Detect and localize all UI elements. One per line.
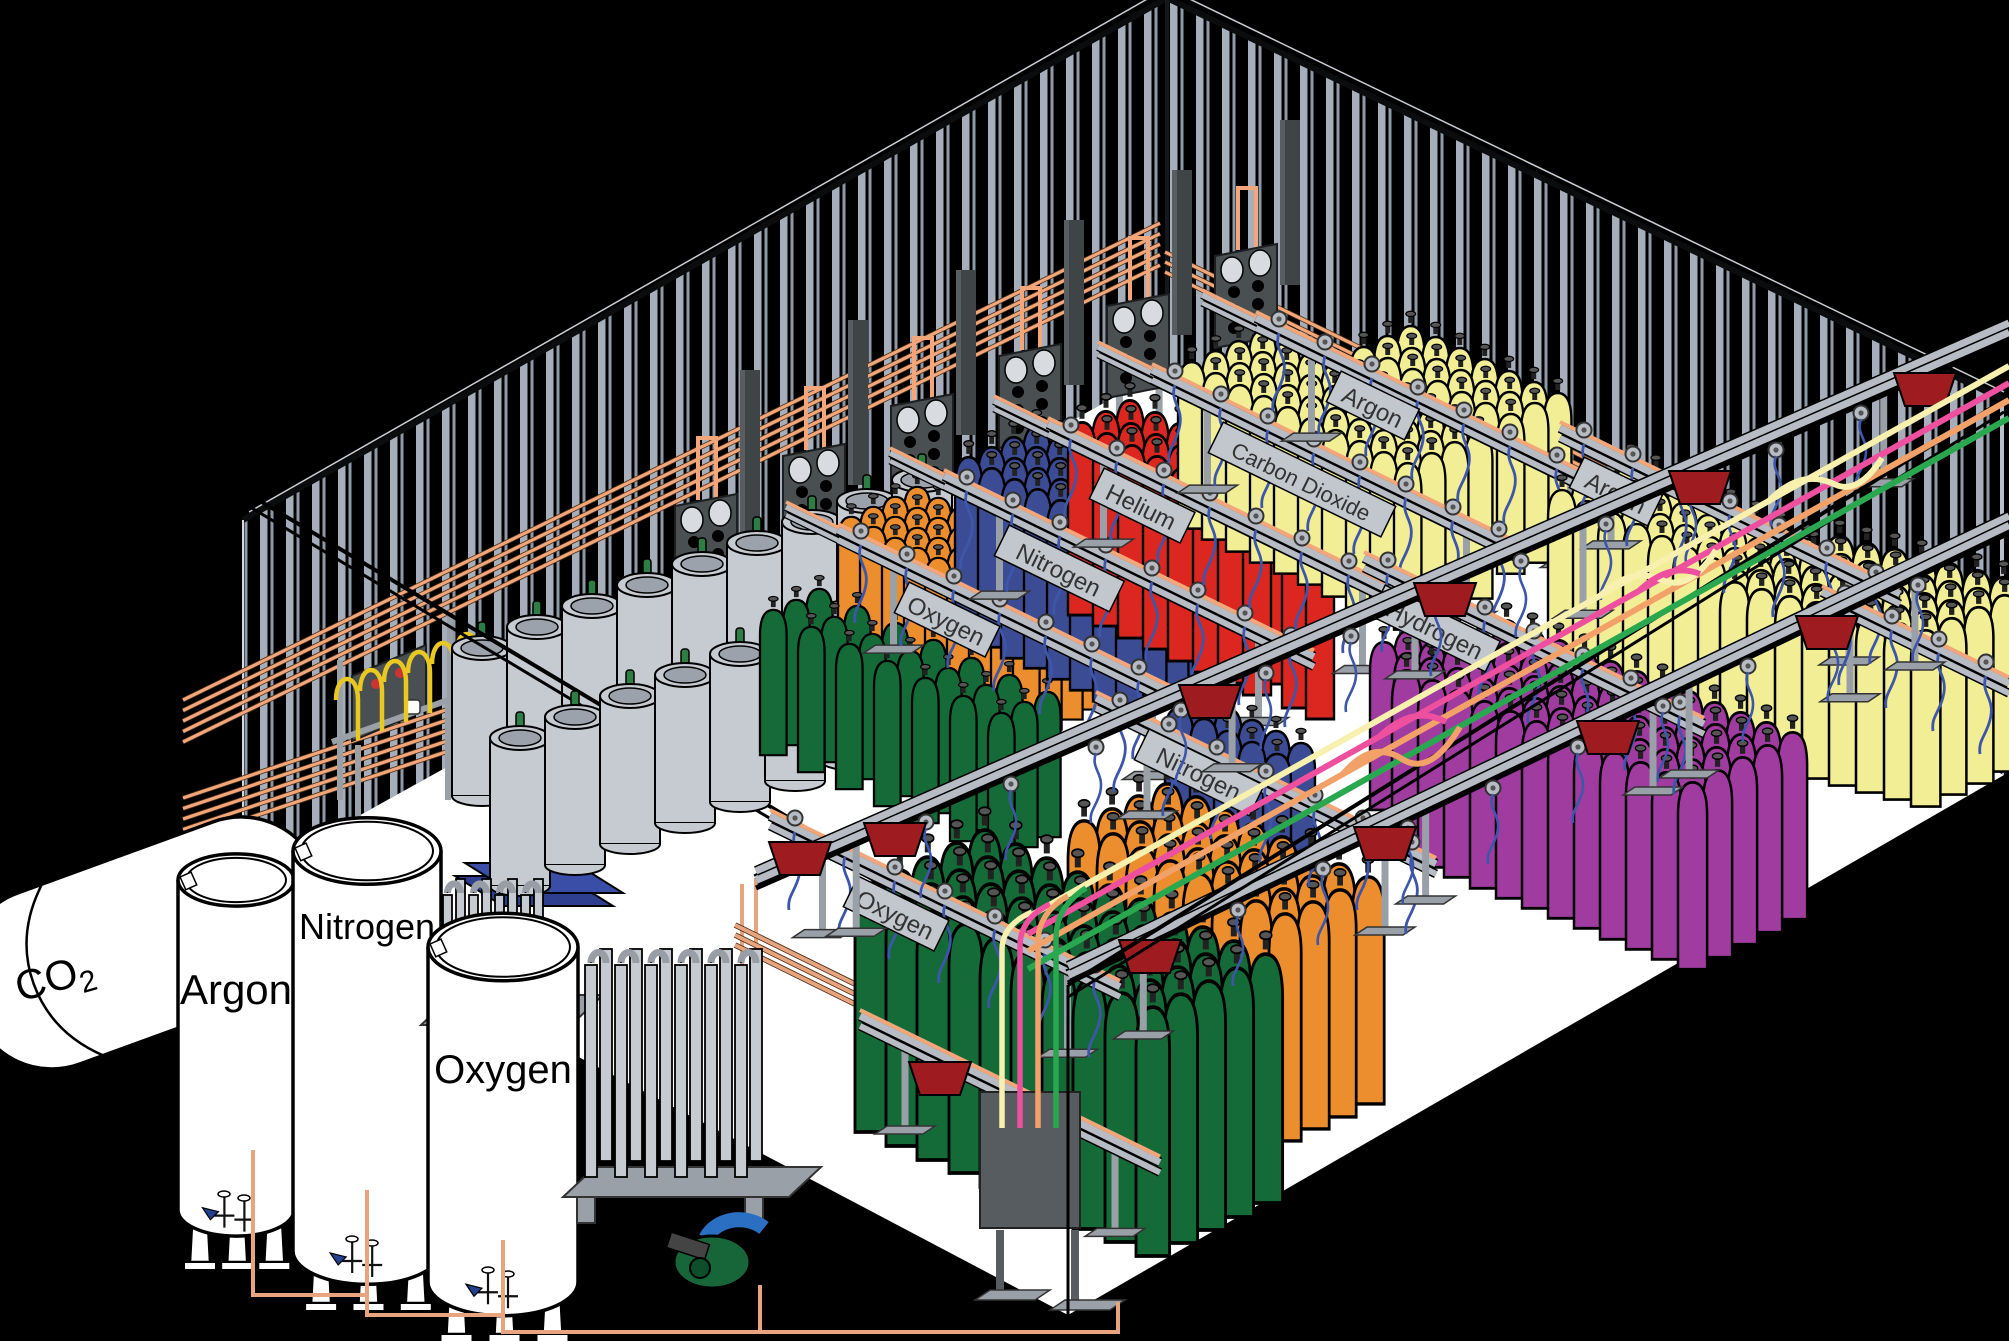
svg-text:Nitrogen: Nitrogen bbox=[299, 906, 435, 947]
svg-text:Argon: Argon bbox=[180, 966, 292, 1013]
svg-text:Oxygen: Oxygen bbox=[434, 1048, 572, 1092]
